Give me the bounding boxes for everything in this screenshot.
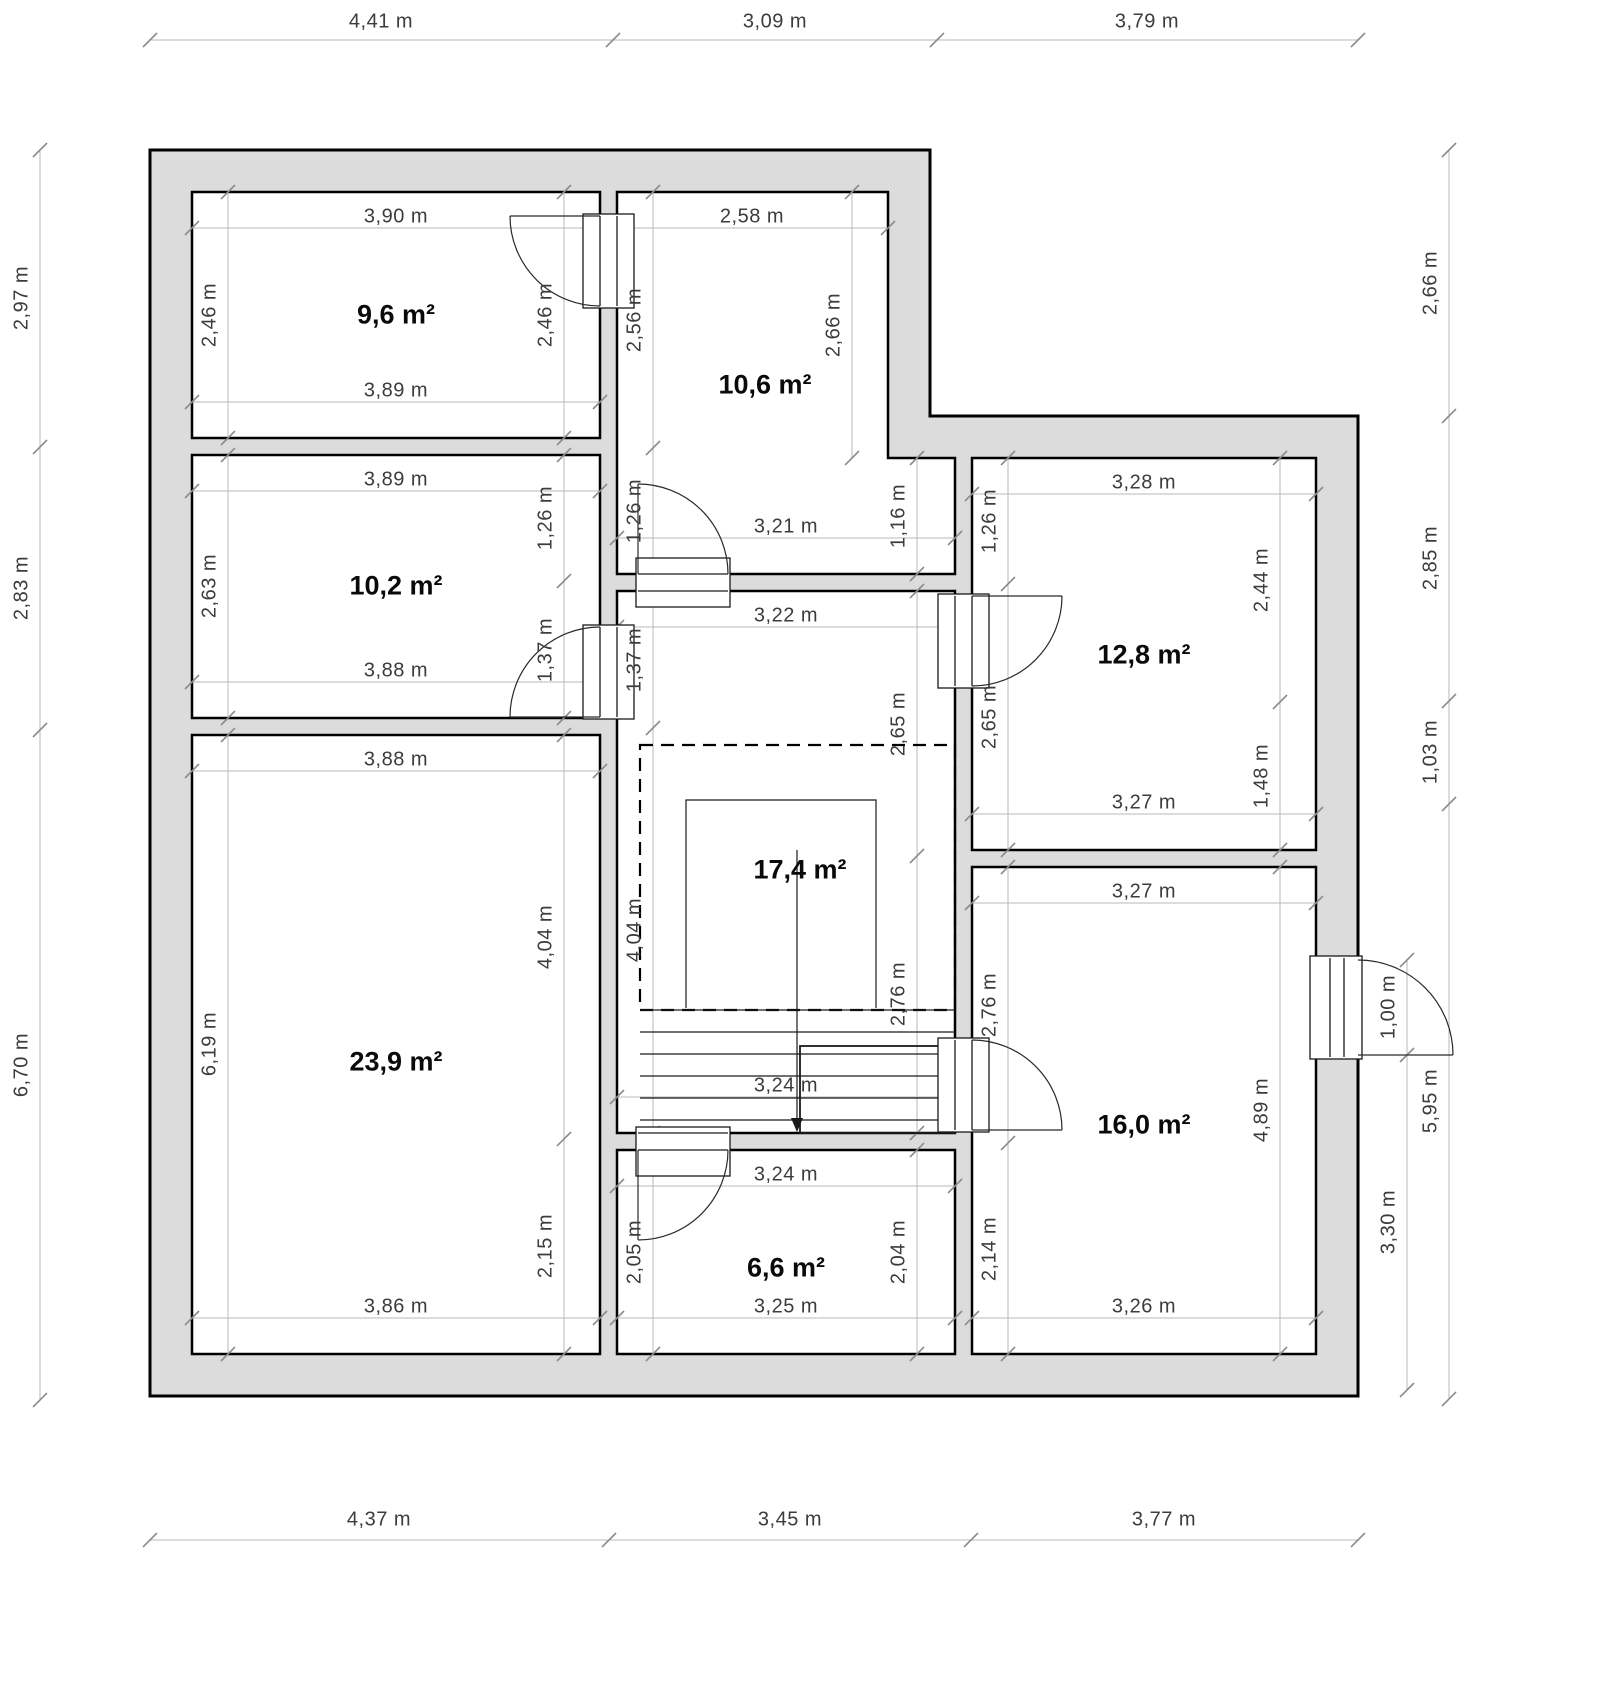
room-23-9 (192, 735, 600, 1354)
door-frame (938, 1038, 989, 1132)
door-frame (583, 625, 634, 719)
room-9-6 (192, 192, 600, 438)
room-16-0 (972, 867, 1316, 1354)
room-6-6 (617, 1150, 955, 1354)
room-12-8 (972, 458, 1316, 850)
room-hall-17-4 (617, 591, 955, 1133)
exterior-door-frame (1310, 956, 1362, 1059)
floor-plan-drawing (0, 0, 1601, 1700)
door-frame (636, 1127, 730, 1176)
floor-plan-page: 4,41 m3,09 m3,79 m4,37 m3,45 m3,77 m2,97… (0, 0, 1601, 1700)
room-10-2 (192, 455, 600, 718)
exterior-door-swing-arc (1358, 960, 1453, 1055)
door-frame (583, 214, 634, 308)
rooms (192, 192, 1316, 1354)
door-frame (636, 558, 730, 607)
door-frame (938, 594, 989, 688)
